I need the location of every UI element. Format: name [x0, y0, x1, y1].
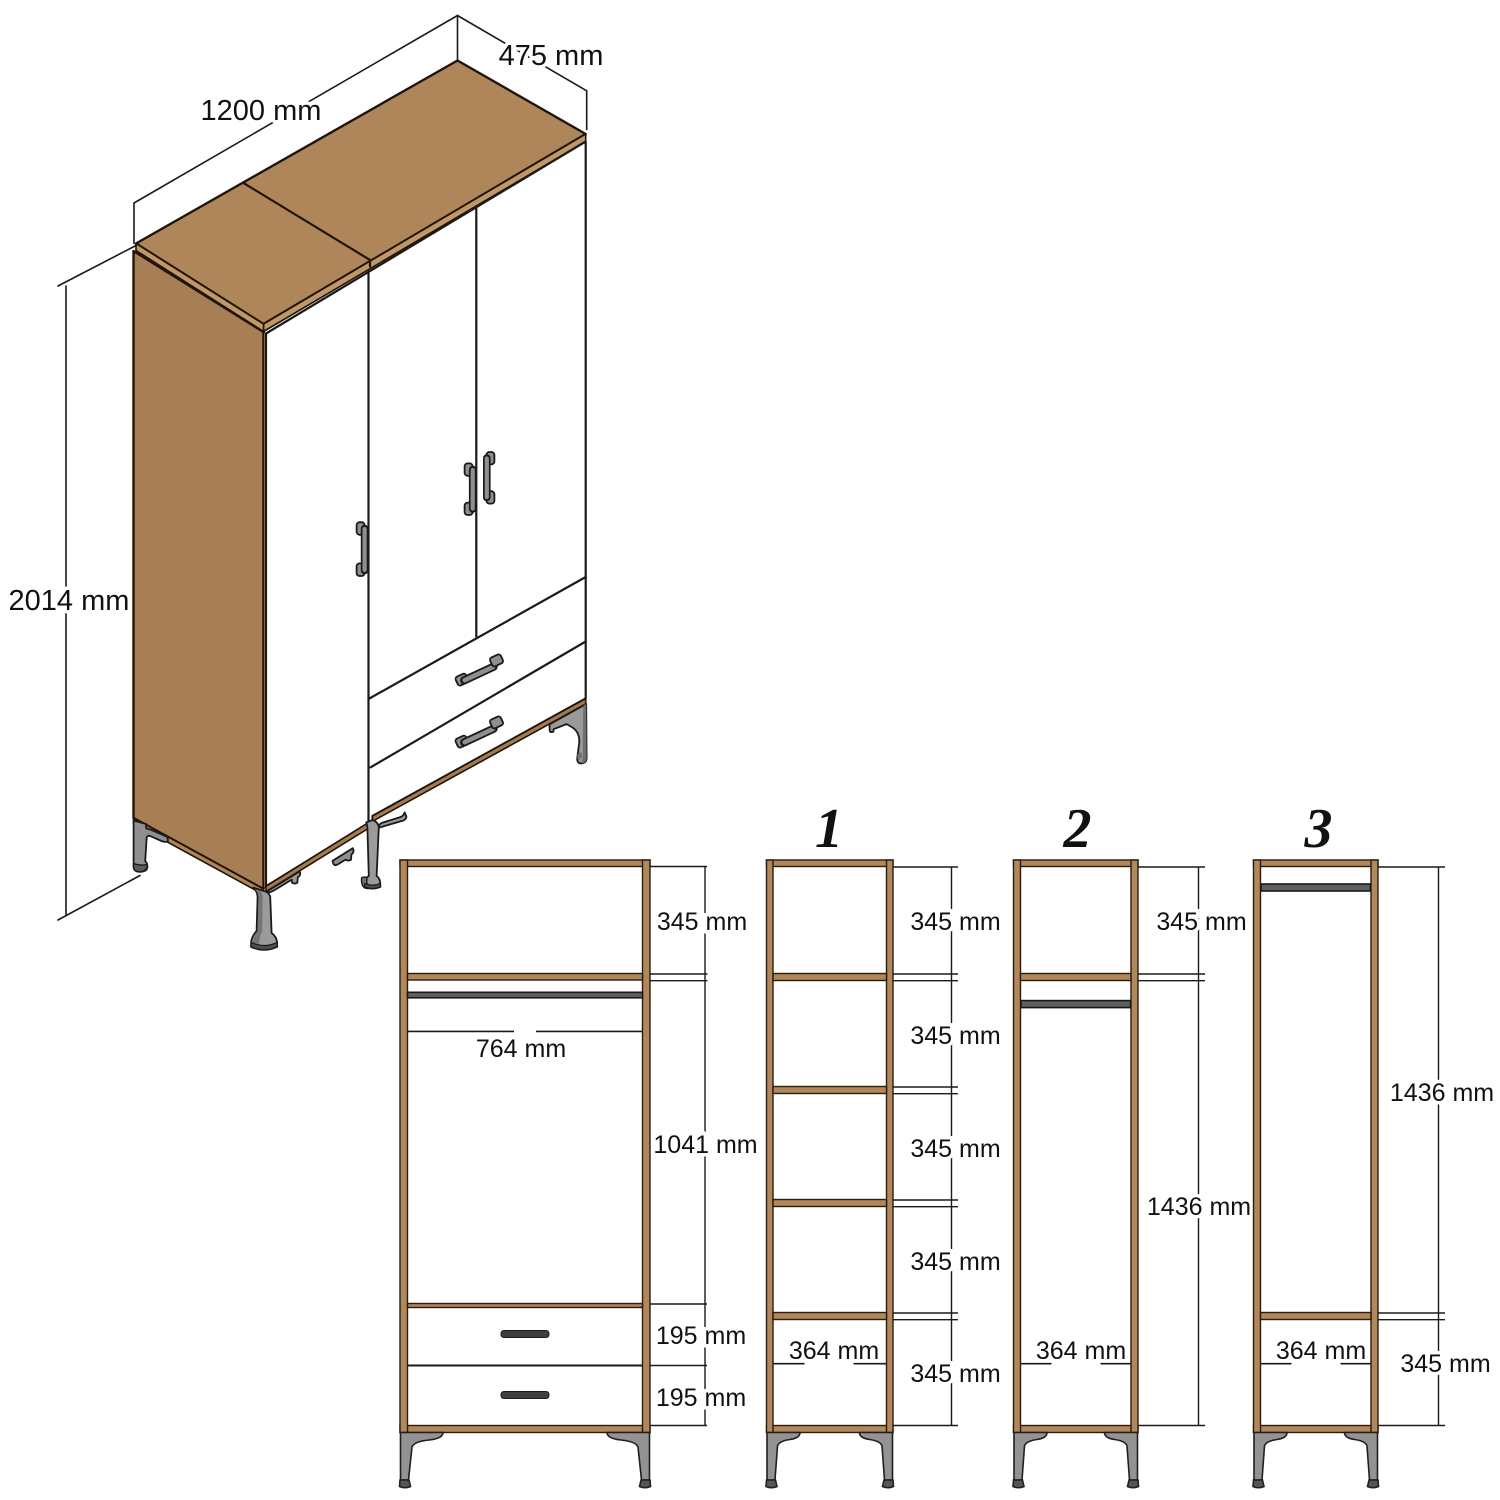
svg-text:364 mm: 364 mm: [789, 1337, 879, 1365]
svg-text:364 mm: 364 mm: [1036, 1337, 1126, 1365]
svg-text:1041 mm: 1041 mm: [653, 1131, 757, 1159]
svg-text:345 mm: 345 mm: [910, 1022, 1000, 1050]
svg-text:764 mm: 764 mm: [476, 1035, 566, 1063]
svg-text:475 mm: 475 mm: [499, 40, 604, 72]
svg-text:345 mm: 345 mm: [910, 908, 1000, 936]
svg-text:195 mm: 195 mm: [656, 1322, 746, 1350]
svg-text:364 mm: 364 mm: [1276, 1337, 1366, 1365]
svg-text:195 mm: 195 mm: [656, 1384, 746, 1412]
svg-text:3: 3: [1304, 798, 1333, 860]
svg-text:1: 1: [815, 798, 843, 860]
svg-text:345 mm: 345 mm: [1156, 908, 1246, 936]
svg-text:2014 mm: 2014 mm: [9, 585, 130, 617]
svg-text:2: 2: [1063, 798, 1092, 860]
svg-text:345 mm: 345 mm: [910, 1135, 1000, 1163]
svg-text:1436 mm: 1436 mm: [1390, 1079, 1494, 1107]
svg-text:345 mm: 345 mm: [657, 908, 747, 936]
svg-text:345 mm: 345 mm: [910, 1248, 1000, 1276]
svg-text:1436 mm: 1436 mm: [1147, 1193, 1251, 1221]
svg-text:1200 mm: 1200 mm: [201, 95, 322, 127]
svg-text:345 mm: 345 mm: [1400, 1350, 1490, 1378]
svg-text:345 mm: 345 mm: [910, 1360, 1000, 1388]
